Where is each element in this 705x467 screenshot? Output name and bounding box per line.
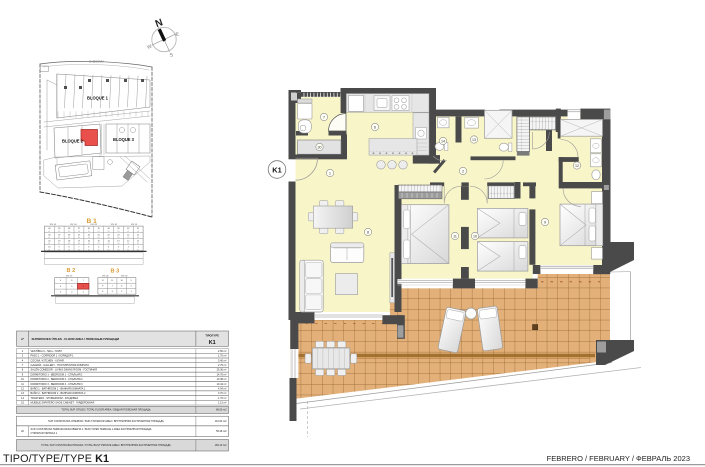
svg-text:K4: K4	[118, 237, 120, 239]
svg-text:30: 30	[318, 145, 322, 149]
svg-text:10: 10	[21, 378, 24, 381]
svg-text:8: 8	[22, 369, 24, 372]
svg-text:VESTÍBULO - HALL / ХОЛЛ: VESTÍBULO - HALL / ХОЛЛ	[31, 350, 63, 353]
svg-text:TRASTERO - STOREROOM - КЛАДОВК: TRASTERO - STOREROOM - КЛАДОВКА	[31, 397, 79, 400]
svg-text:VIV. 03: VIV. 03	[90, 224, 97, 226]
svg-text:FEBRERO / FEBRUARY / ФЕВРАЛЬ: FEBRERO / FEBRUARY / ФЕВРАЛЬ 2023	[547, 454, 690, 463]
svg-text:DORMITORIO 1 - BEDROOM 1 - СПА: DORMITORIO 1 - BEDROOM 1 - СПАЛЬНЯ 1	[31, 373, 84, 376]
svg-text:1.70 m²: 1.70 m²	[218, 397, 227, 400]
svg-text:K2: K2	[58, 237, 60, 239]
svg-text:13: 13	[21, 392, 24, 395]
svg-text:SUPERFICIES ÚTILES - FLOOR ARE: SUPERFICIES ÚTILES - FLOOR AREA / ПОЛЕЗН…	[32, 336, 120, 341]
svg-text:K1: K1	[209, 340, 216, 346]
svg-text:5.40 m²: 5.40 m²	[218, 359, 227, 362]
svg-text:K2: K2	[98, 243, 100, 245]
svg-text:K3: K3	[108, 243, 110, 245]
svg-text:1: 1	[329, 171, 331, 175]
svg-text:12: 12	[21, 387, 24, 390]
svg-text:ОТКРЫТАЯ ТЕРРАСА 1: ОТКРЫТАЯ ТЕРРАСА 1	[31, 432, 58, 435]
svg-text:10: 10	[473, 234, 477, 238]
svg-text:86.60 m2: 86.60 m2	[216, 409, 227, 412]
svg-text:W: W	[146, 44, 153, 51]
svg-text:1.70 m²: 1.70 m²	[218, 355, 227, 358]
svg-text:VIV. 05: VIV. 05	[50, 224, 57, 226]
svg-text:14.76 m²: 14.76 m²	[217, 373, 227, 376]
svg-text:B 3: B 3	[111, 269, 120, 275]
svg-text:K1: K1	[48, 243, 50, 245]
svg-text:K1: K1	[48, 237, 50, 239]
svg-text:4: 4	[22, 359, 24, 362]
svg-text:BAÑO 1 - BATHROOM 1 - ВАННАЯ К: BAÑO 1 - BATHROOM 1 - ВАННАЯ КОМНАТА 1	[31, 387, 87, 390]
svg-text:S: S	[169, 52, 175, 59]
svg-text:K4: K4	[78, 243, 80, 245]
svg-text:BLOQUE 2: BLOQUE 2	[62, 139, 84, 144]
svg-text:VIV. 06: VIV. 06	[102, 276, 109, 278]
svg-text:K1: K1	[127, 243, 129, 245]
svg-text:K3: K3	[108, 237, 110, 239]
svg-text:VIV. 01: VIV. 01	[131, 224, 138, 226]
svg-text:DORMITORIO 3 - BEDROOM 3 - СПА: DORMITORIO 3 - BEDROOM 3 - СПАЛЬНЯ 3	[31, 383, 84, 386]
svg-text:166.10 m2: 166.10 m2	[215, 444, 227, 447]
svg-text:6: 6	[374, 125, 376, 129]
svg-text:2: 2	[462, 169, 464, 173]
svg-text:TIPO/TYPE: TIPO/TYPE	[205, 334, 219, 338]
svg-text:K1: K1	[88, 237, 90, 239]
svg-text:C/ SEGOVIA: C/ SEGOVIA	[89, 59, 104, 63]
svg-text:4.04 m²: 4.04 m²	[218, 387, 227, 390]
svg-text:8: 8	[367, 230, 369, 234]
svg-text:BLOQUE 3: BLOQUE 3	[113, 137, 135, 142]
svg-text:B 2: B 2	[67, 268, 76, 274]
svg-text:3.70 m²: 3.70 m²	[218, 392, 227, 395]
svg-text:1: 1	[22, 350, 24, 353]
svg-text:K1: K1	[48, 231, 50, 233]
svg-text:9: 9	[544, 220, 546, 224]
svg-text:GALERÍA - GALLERY - ПОСТИРОЧНА: GALERÍA - GALLERY - ПОСТИРОЧНАЯ КОМНАТА	[31, 364, 90, 367]
svg-text:K2: K2	[137, 231, 139, 233]
svg-text:VIV. 04: VIV. 04	[70, 224, 77, 226]
svg-text:COCINA / KITCHEN - КУХНЯ: COCINA / KITCHEN - КУХНЯ	[31, 359, 64, 362]
svg-text:K2: K2	[58, 231, 60, 233]
svg-text:1.12 m²: 1.12 m²	[218, 402, 227, 405]
svg-text:SALÓN COMEDOR - LIVING-DINING: SALÓN COMEDOR - LIVING-DINING ROOM - ГОС…	[31, 369, 98, 372]
svg-text:14: 14	[441, 139, 445, 143]
svg-text:K1: K1	[88, 243, 90, 245]
svg-text:MUEBLE ZAPATERO SHOE CABINET -: MUEBLE ZAPATERO SHOE CABINET - ГАРДЕРОБН…	[31, 402, 95, 405]
svg-text:K4: K4	[118, 243, 120, 245]
svg-text:K2: K2	[137, 237, 139, 239]
svg-text:K1: K1	[127, 237, 129, 239]
svg-text:K3: K3	[68, 243, 70, 245]
svg-text:K2: K2	[58, 243, 60, 245]
svg-text:K1: K1	[127, 231, 129, 233]
svg-text:N: N	[154, 17, 165, 30]
svg-text:2.75 m²: 2.75 m²	[218, 364, 227, 367]
svg-text:SUP. CONSTRUIDA TERRAZA DESCUB: SUP. CONSTRUIDA TERRAZA DESCUBIERTA 1 / …	[31, 428, 152, 431]
svg-text:K3: K3	[108, 231, 110, 233]
svg-text:K1: K1	[88, 231, 90, 233]
svg-text:13: 13	[472, 138, 476, 142]
svg-text:VIV. 02: VIV. 02	[111, 224, 118, 226]
svg-text:E: E	[175, 31, 181, 38]
svg-text:BLOQUE 1: BLOQUE 1	[87, 96, 109, 101]
svg-text:10.44 m²: 10.44 m²	[217, 383, 227, 386]
svg-text:SUP CONSTRUIDA INTERIOR / BUIL: SUP CONSTRUIDA INTERIOR / BUILT INTERIOR…	[48, 420, 164, 423]
svg-text:TIPO/TYPE/TYPE K1: TIPO/TYPE/TYPE K1	[3, 453, 109, 465]
svg-text:7: 7	[22, 364, 24, 367]
svg-text:TOTAL SUP CONSTRUIDA PRIVADA /: TOTAL SUP CONSTRUIDA PRIVADA / TOTAL BUI…	[41, 444, 171, 447]
svg-text:11: 11	[453, 234, 457, 238]
svg-text:K4: K4	[78, 237, 80, 239]
svg-text:15: 15	[21, 402, 24, 405]
svg-text:12: 12	[575, 164, 579, 168]
svg-text:14: 14	[21, 397, 24, 400]
svg-text:9: 9	[22, 373, 24, 376]
svg-text:2: 2	[22, 355, 24, 358]
svg-text:DORMITORIO 2 - BEDROOM 2 - СПА: DORMITORIO 2 - BEDROOM 2 - СПАЛЬНЯ 2	[31, 378, 84, 381]
svg-text:K3: K3	[68, 237, 70, 239]
svg-text:PASO 1 - CORRIDOR 1 / КОРИДОР: PASO 1 - CORRIDOR 1 / КОРИДОР 1	[31, 355, 75, 358]
svg-text:K1: K1	[272, 165, 281, 174]
svg-text:K3: K3	[68, 231, 70, 233]
svg-text:55.48 m2: 55.48 m2	[216, 430, 227, 433]
svg-text:TOTAL SUP. ÚTILES / TOTAL FLOO: TOTAL SUP. ÚTILES / TOTAL FLOOR AREA / О…	[61, 409, 150, 412]
svg-text:K2: K2	[98, 231, 100, 233]
svg-text:110.62 m2: 110.62 m2	[215, 420, 227, 423]
svg-text:K2: K2	[98, 237, 100, 239]
svg-text:BAÑO 2 - BATHROOM 2 - ВАННАЯ К: BAÑO 2 - BATHROOM 2 - ВАННАЯ КОМНАТА 2	[31, 392, 87, 395]
svg-text:2.50 m²: 2.50 m²	[218, 350, 227, 353]
svg-text:VIV. 06: VIV. 06	[121, 276, 128, 278]
svg-text:11: 11	[21, 383, 24, 386]
svg-text:K4: K4	[78, 231, 80, 233]
svg-text:25.36 m²: 25.36 m²	[217, 369, 227, 372]
svg-text:VIV. 07: VIV. 07	[66, 276, 73, 278]
svg-text:10.38 m²: 10.38 m²	[217, 378, 227, 381]
svg-text:K2: K2	[137, 243, 139, 245]
svg-text:K4: K4	[118, 231, 120, 233]
svg-text:7: 7	[323, 115, 325, 119]
